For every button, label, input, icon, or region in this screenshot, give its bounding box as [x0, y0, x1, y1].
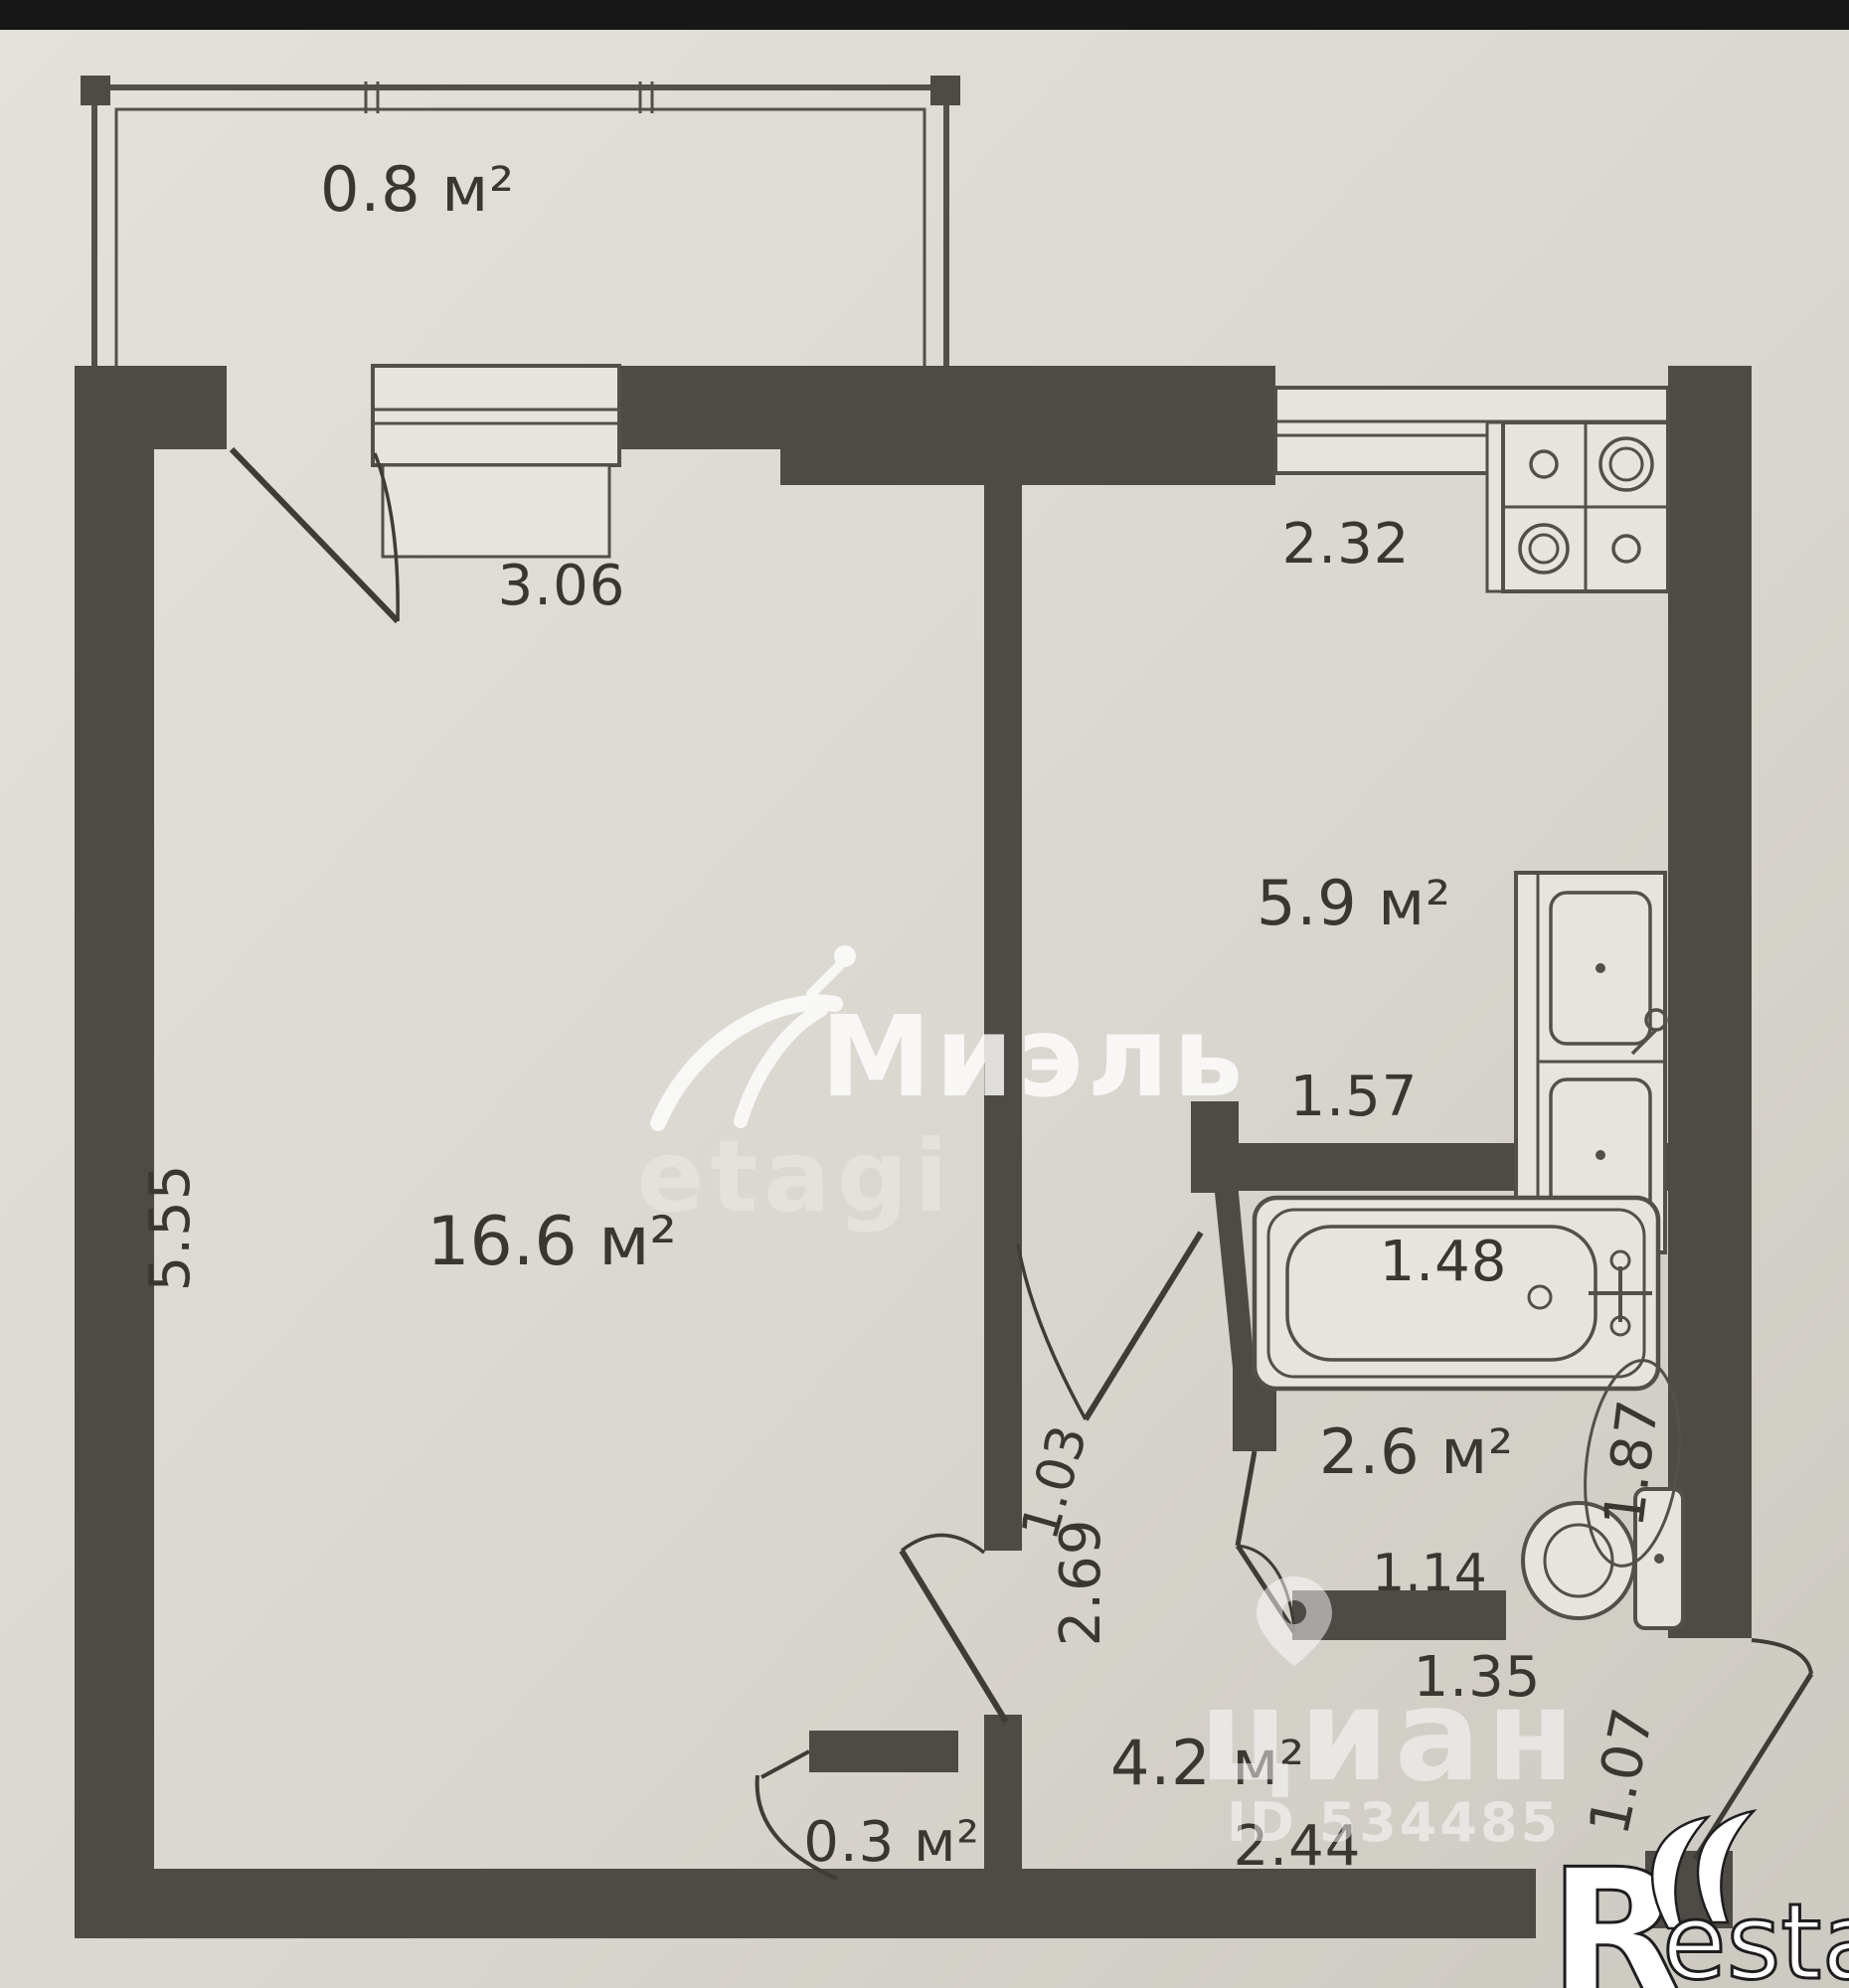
- wall-bottom-outer: [75, 1869, 1536, 1938]
- label-room-height: 5.55: [138, 1164, 203, 1292]
- wall-left-outer: [75, 366, 154, 1938]
- watermark-etagi: etagi: [637, 1118, 954, 1235]
- room-window: [373, 366, 619, 557]
- label-bath-area: 2.6 м²: [1319, 1415, 1514, 1488]
- stove-edge: [1487, 422, 1503, 591]
- wall-top-left: [75, 366, 227, 449]
- label-kitchen-depth: 1.57: [1290, 1065, 1419, 1129]
- cian-brand-text: циан: [1199, 1662, 1580, 1810]
- wall-top-middle: [619, 366, 780, 449]
- drain: [1596, 1150, 1605, 1160]
- label-room-width: 3.06: [498, 554, 626, 618]
- cian-id-text: ID 534485: [1227, 1791, 1561, 1854]
- label-toilet-width: 1.14: [1372, 1544, 1487, 1603]
- miel-dot: [834, 945, 856, 967]
- window-frame: [373, 366, 619, 465]
- photo-top-strip: [0, 0, 1849, 30]
- wall-top-block: [780, 366, 1275, 485]
- kitchen-sink-icon: [1516, 873, 1666, 1252]
- restate-text: estate: [1662, 1882, 1849, 1988]
- floor-plan: 0.8 м² 3.06 2.32 5.9 м² 1.57 16.6 м² 5.5…: [0, 0, 1849, 1988]
- miel-brand-text: Миэль: [820, 993, 1247, 1122]
- label-bath-length: 1.48: [1380, 1230, 1508, 1294]
- stove-icon: [1487, 422, 1668, 591]
- rail-post: [81, 76, 110, 105]
- label-closet-area: 0.3 м²: [803, 1810, 980, 1875]
- label-kitchen-area: 5.9 м²: [1257, 867, 1451, 939]
- wall-closet-stub: [809, 1731, 958, 1772]
- label-balcony-area: 0.8 м²: [320, 153, 515, 226]
- label-kitchen-width: 2.32: [1282, 512, 1411, 577]
- rail-post: [930, 76, 960, 105]
- window-sill: [383, 465, 609, 557]
- label-hall-height: 2.69: [1049, 1519, 1113, 1647]
- drain: [1596, 963, 1605, 973]
- toilet-button: [1654, 1554, 1664, 1564]
